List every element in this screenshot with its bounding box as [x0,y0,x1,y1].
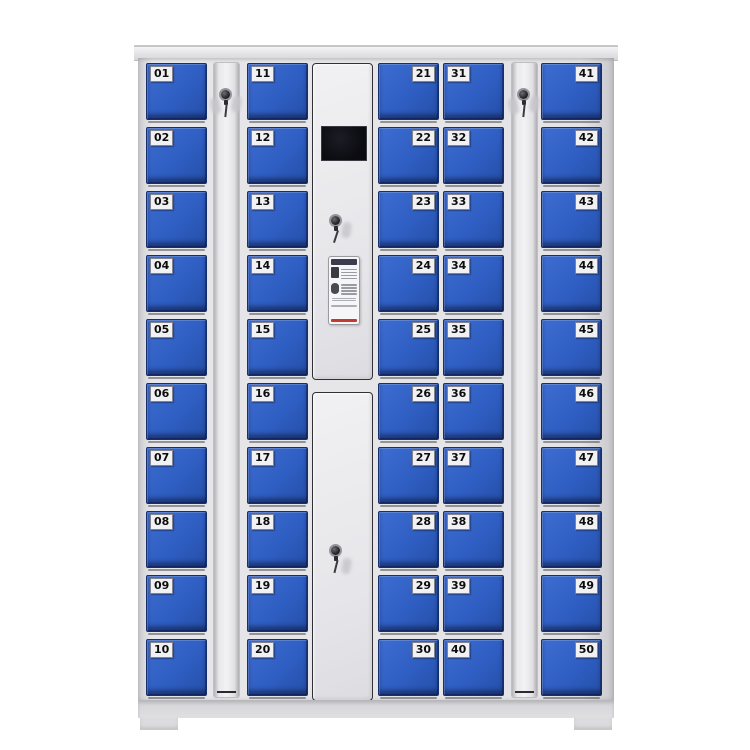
locker-column-2: 11 12 13 14 15 16 17 18 19 20 [247,63,308,696]
door-number-label: 18 [251,514,274,530]
phone-icon [331,267,339,278]
door-42: 42 [541,127,602,184]
door-number-label: 03 [150,194,173,210]
sticker-step [331,283,357,297]
door-number-label: 29 [412,578,435,594]
door-34: 34 [443,255,504,312]
door-03: 03 [146,191,207,248]
keypad-icon [331,283,339,294]
door-19: 19 [247,575,308,632]
key-tag [231,95,243,112]
door-number-label: 08 [150,514,173,530]
door-number-label: 15 [251,322,274,338]
keyhole-icon [221,90,230,99]
door-32: 32 [443,127,504,184]
door-31: 31 [443,63,504,120]
locker-cabinet: 01 02 03 04 05 06 07 08 09 10 [138,45,614,718]
door-number-label: 14 [251,258,274,274]
key-icon [333,560,338,573]
door-number-label: 27 [412,450,435,466]
door-number-label: 17 [251,450,274,466]
door-24: 24 [378,255,439,312]
door-number-label: 39 [447,578,470,594]
locker-column-4: 31 32 33 34 35 36 37 38 39 40 [443,63,504,696]
door-33: 33 [443,191,504,248]
door-number-label: 45 [575,322,598,338]
door-number-label: 43 [575,194,598,210]
sticker-fine-print [329,298,359,302]
control-top-door [312,63,373,380]
left-key-strip [214,63,239,697]
door-47: 47 [541,447,602,504]
door-05: 05 [146,319,207,376]
right-key-strip [512,63,537,697]
keyhole-icon [331,546,340,555]
door-number-label: 09 [150,578,173,594]
keyhole-icon [519,90,528,99]
door-48: 48 [541,511,602,568]
sticker-footer-text [329,305,359,306]
key-tag [209,97,221,115]
door-04: 04 [146,255,207,312]
key-tag [341,221,353,238]
door-number-label: 04 [150,258,173,274]
instruction-sticker [328,256,360,325]
door-number-label: 35 [447,322,470,338]
door-21: 21 [378,63,439,120]
locker-column-1: 01 02 03 04 05 06 07 08 09 10 [146,63,207,696]
key-tag [507,97,519,115]
control-column [312,63,373,696]
door-23: 23 [378,191,439,248]
door-16: 16 [247,383,308,440]
sticker-red-bar [331,319,357,322]
door-number-label: 02 [150,130,173,146]
door-number-label: 22 [412,130,435,146]
keyhole-icon [331,216,340,225]
door-15: 15 [247,319,308,376]
door-07: 07 [146,447,207,504]
door-26: 26 [378,383,439,440]
door-02: 02 [146,127,207,184]
lcd-screen [321,126,367,161]
door-39: 39 [443,575,504,632]
door-number-label: 47 [575,450,598,466]
door-17: 17 [247,447,308,504]
door-28: 28 [378,511,439,568]
door-27: 27 [378,447,439,504]
door-number-label: 25 [412,322,435,338]
key-tag [529,95,541,112]
cabinet-foot-left [140,718,178,730]
door-number-label: 34 [447,258,470,274]
door-40: 40 [443,639,504,696]
door-49: 49 [541,575,602,632]
sticker-header [331,259,357,265]
door-number-label: 46 [575,386,598,402]
door-number-label: 28 [412,514,435,530]
door-06: 06 [146,383,207,440]
door-number-label: 50 [575,642,598,658]
door-number-label: 44 [575,258,598,274]
door-46: 46 [541,383,602,440]
door-22: 22 [378,127,439,184]
product-photo: 01 02 03 04 05 06 07 08 09 10 [0,0,750,750]
door-number-label: 49 [575,578,598,594]
cabinet-base [138,700,614,718]
door-number-label: 19 [251,578,274,594]
door-12: 12 [247,127,308,184]
door-11: 11 [247,63,308,120]
key-icon [522,104,525,117]
door-number-label: 40 [447,642,470,658]
door-number-label: 41 [575,66,598,82]
locker-column-3: 21 22 23 24 25 26 27 28 29 30 [378,63,439,696]
door-45: 45 [541,319,602,376]
door-number-label: 13 [251,194,274,210]
door-50: 50 [541,639,602,696]
door-number-label: 42 [575,130,598,146]
cabinet-body: 01 02 03 04 05 06 07 08 09 10 [138,58,614,700]
door-01: 01 [146,63,207,120]
door-number-label: 33 [447,194,470,210]
door-number-label: 38 [447,514,470,530]
door-44: 44 [541,255,602,312]
door-number-label: 32 [447,130,470,146]
door-number-label: 36 [447,386,470,402]
door-number-label: 07 [150,450,173,466]
door-13: 13 [247,191,308,248]
door-35: 35 [443,319,504,376]
door-38: 38 [443,511,504,568]
door-number-label: 21 [412,66,435,82]
door-number-label: 30 [412,642,435,658]
door-29: 29 [378,575,439,632]
door-number-label: 11 [251,66,274,82]
door-number-label: 48 [575,514,598,530]
door-10: 10 [146,639,207,696]
sticker-step [331,267,357,281]
door-20: 20 [247,639,308,696]
locker-column-5: 41 42 43 44 45 46 47 48 49 50 [541,63,602,696]
door-number-label: 37 [447,450,470,466]
key-icon [333,230,339,243]
door-number-label: 20 [251,642,274,658]
door-09: 09 [146,575,207,632]
door-25: 25 [378,319,439,376]
door-36: 36 [443,383,504,440]
door-number-label: 16 [251,386,274,402]
door-number-label: 31 [447,66,470,82]
door-number-label: 26 [412,386,435,402]
door-18: 18 [247,511,308,568]
door-number-label: 06 [150,386,173,402]
key-tag [341,557,353,574]
door-41: 41 [541,63,602,120]
door-number-label: 24 [412,258,435,274]
door-number-label: 01 [150,66,173,82]
door-number-label: 05 [150,322,173,338]
door-08: 08 [146,511,207,568]
control-bottom-door [312,392,373,701]
door-37: 37 [443,447,504,504]
cabinet-foot-right [574,718,612,730]
door-30: 30 [378,639,439,696]
door-number-label: 12 [251,130,274,146]
key-icon [224,104,227,117]
door-14: 14 [247,255,308,312]
door-number-label: 23 [412,194,435,210]
door-number-label: 10 [150,642,173,658]
door-43: 43 [541,191,602,248]
